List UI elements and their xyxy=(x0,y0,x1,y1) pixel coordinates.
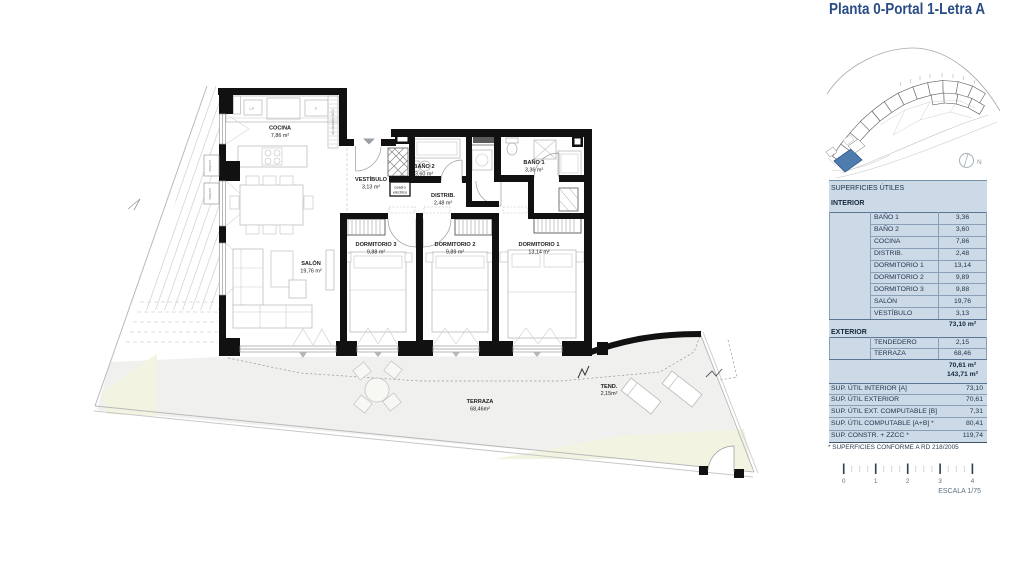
svg-text:cuadro: cuadro xyxy=(394,186,406,190)
svg-text:maq.ext: maq.ext xyxy=(208,160,212,171)
svg-text:9,88 m²: 9,88 m² xyxy=(367,250,385,256)
svg-text:1: 1 xyxy=(874,478,878,485)
svg-text:3: 3 xyxy=(938,478,942,485)
svg-text:2: 2 xyxy=(906,478,910,485)
svg-text:N: N xyxy=(977,159,982,166)
svg-text:2,15m²: 2,15m² xyxy=(601,391,618,397)
svg-text:BAÑO 1: BAÑO 1 xyxy=(523,159,544,166)
svg-text:9,89 m²: 9,89 m² xyxy=(446,250,464,256)
svg-text:eléctrico: eléctrico xyxy=(393,191,407,195)
svg-text:DORMITORIO 2: DORMITORIO 2 xyxy=(435,242,476,248)
svg-text:maq.ext: maq.ext xyxy=(208,188,212,199)
svg-text:BAÑO 2: BAÑO 2 xyxy=(413,163,434,170)
svg-text:19,76 m²: 19,76 m² xyxy=(300,269,321,275)
svg-text:4: 4 xyxy=(971,478,975,485)
svg-text:DISTRIB.: DISTRIB. xyxy=(431,193,455,199)
svg-text:13,14 m²: 13,14 m² xyxy=(528,250,549,256)
svg-text:3,36 m²: 3,36 m² xyxy=(525,168,543,174)
svg-text:7,86 m²: 7,86 m² xyxy=(271,133,289,139)
svg-text:DORMITORIO 1: DORMITORIO 1 xyxy=(519,242,560,248)
svg-text:2,48 m²: 2,48 m² xyxy=(434,201,452,207)
svg-text:LP: LP xyxy=(250,106,255,111)
svg-text:TEND.: TEND. xyxy=(601,384,618,390)
svg-text:0: 0 xyxy=(842,478,846,485)
svg-text:SALÓN: SALÓN xyxy=(301,259,321,267)
svg-text:acumulador ACS: acumulador ACS xyxy=(331,109,335,135)
svg-text:3,60 m²: 3,60 m² xyxy=(415,172,433,178)
svg-text:COCINA: COCINA xyxy=(269,126,291,132)
svg-text:3,13 m²: 3,13 m² xyxy=(362,185,380,191)
svg-text:DORMITORIO 3: DORMITORIO 3 xyxy=(356,242,397,248)
svg-text:ESCALA 1/75: ESCALA 1/75 xyxy=(938,488,981,495)
svg-text:68,46m²: 68,46m² xyxy=(470,407,490,413)
svg-text:TERRAZA: TERRAZA xyxy=(467,399,494,405)
svg-text:VESTÍBULO: VESTÍBULO xyxy=(355,175,388,183)
